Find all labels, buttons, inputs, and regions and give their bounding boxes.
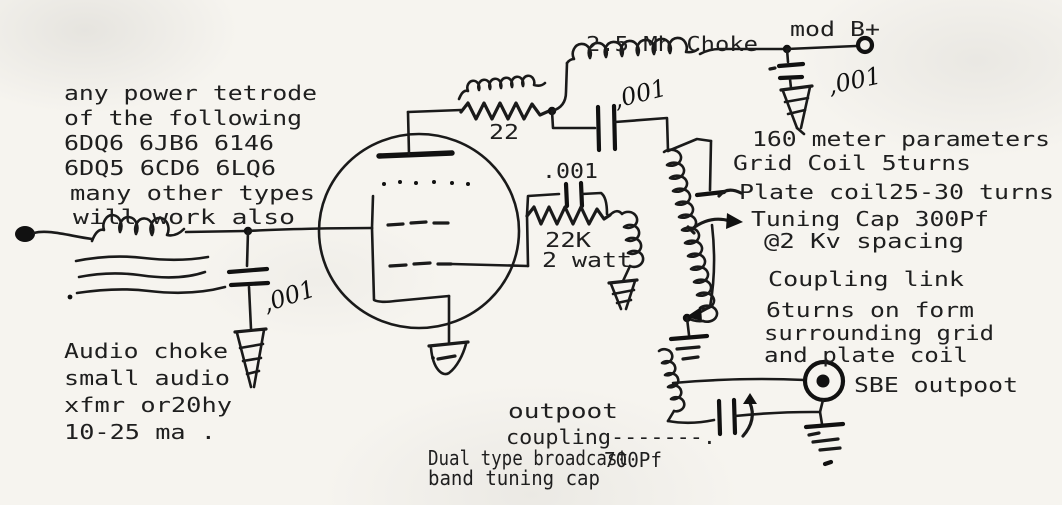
note-tube-types-line6: will work also	[73, 205, 295, 229]
ground-symbol-output	[806, 424, 843, 464]
parasitic-suppressor-symbol	[459, 76, 549, 119]
note-tube-types-line1: any power tetrode	[64, 81, 317, 105]
plate-tank-symbol	[664, 139, 743, 322]
note-output-line1: outpoot	[508, 399, 618, 423]
label-700pf: 700Pf	[604, 448, 662, 472]
wire-plate-lead	[408, 110, 461, 112]
note-params-line1: 160 meter parameters	[752, 127, 1050, 151]
plate-coupling-capacitor-symbol	[552, 106, 668, 151]
circuit-drawing: any power tetrode of the following 6DQ6 …	[0, 0, 1062, 505]
label-sbe-output: SBE outpoot	[854, 373, 1018, 397]
note-coupling-link: Coupling link 6turns on form surrounding…	[764, 267, 994, 367]
wire-to-b-plus	[787, 46, 856, 49]
note-tuning-cap-line2: band tuning cap	[428, 466, 600, 490]
note-coupling-line1: Coupling link	[768, 267, 964, 291]
note-params-line2: Grid Coil 5turns	[733, 151, 971, 175]
wire-link-to-cap	[668, 420, 714, 423]
note-tube-types-line3: 6DQ6 6JB6 6146	[64, 131, 274, 155]
ground-symbol-grid-coil	[609, 280, 637, 309]
note-audio-choke-line3: xfmr or20hy	[64, 393, 232, 417]
input-bypass-capacitor-symbol	[229, 231, 268, 329]
note-coupling-line4: and plate coil	[764, 343, 968, 367]
note-audio-choke-line2: small audio	[64, 366, 230, 390]
label-grid-cap: .001	[542, 159, 598, 183]
wire-grid-lead	[452, 264, 528, 266]
note-coupling-line2: 6turns on form	[766, 298, 974, 322]
label-suppressor-resistor: 22	[489, 120, 519, 144]
note-tube-types-line5: many other types	[70, 181, 315, 205]
ground-symbol-cathode	[429, 342, 468, 374]
supply-bypass-capacitor-symbol	[770, 49, 803, 88]
wire-link-to-connector	[673, 379, 805, 383]
note-coupling-line3: surrounding grid	[764, 321, 994, 345]
note-tube-types: any power tetrode of the following 6DQ6 …	[64, 81, 317, 229]
pointer-plate-coil	[719, 190, 741, 196]
handwritten-plate-cap-value: ,001	[611, 74, 670, 114]
note-audio-choke: Audio choke small audio xfmr or20hy 10-2…	[64, 339, 232, 444]
note-tube-types-line4: 6DQ5 6CD6 6LQ6	[64, 156, 276, 180]
note-audio-choke-line1: Audio choke	[64, 339, 228, 363]
label-grid-resistor-watt: 2 watt	[542, 248, 632, 272]
ground-symbol-tank	[671, 318, 707, 359]
handwritten-supply-cap-value: ,001	[825, 61, 883, 99]
schematic-scan: any power tetrode of the following 6DQ6 …	[0, 0, 1062, 505]
note-params-line4: Tuning Cap 300Pf	[751, 207, 989, 231]
output-tuning-capacitor-symbol	[719, 393, 820, 436]
note-tube-types-line2: of the following	[64, 106, 302, 130]
note-audio-choke-line4: 10-25 ma .	[64, 420, 216, 444]
coax-output-connector	[805, 362, 843, 424]
grid-resistor-symbol	[527, 207, 610, 224]
note-params-line3: Plate coil25-30 turns	[739, 180, 1054, 204]
coupling-link-coil-symbol	[659, 349, 684, 421]
note-160m-parameters: 160 meter parameters Grid Coil 5turns Pl…	[733, 127, 1054, 253]
note-params-line5: @2 Kv spacing	[764, 229, 964, 253]
label-mod-b-plus: mod B+	[790, 17, 880, 41]
label-plate-choke: 2.5 Mh Choke	[586, 32, 758, 56]
ground-symbol-input	[235, 329, 266, 387]
